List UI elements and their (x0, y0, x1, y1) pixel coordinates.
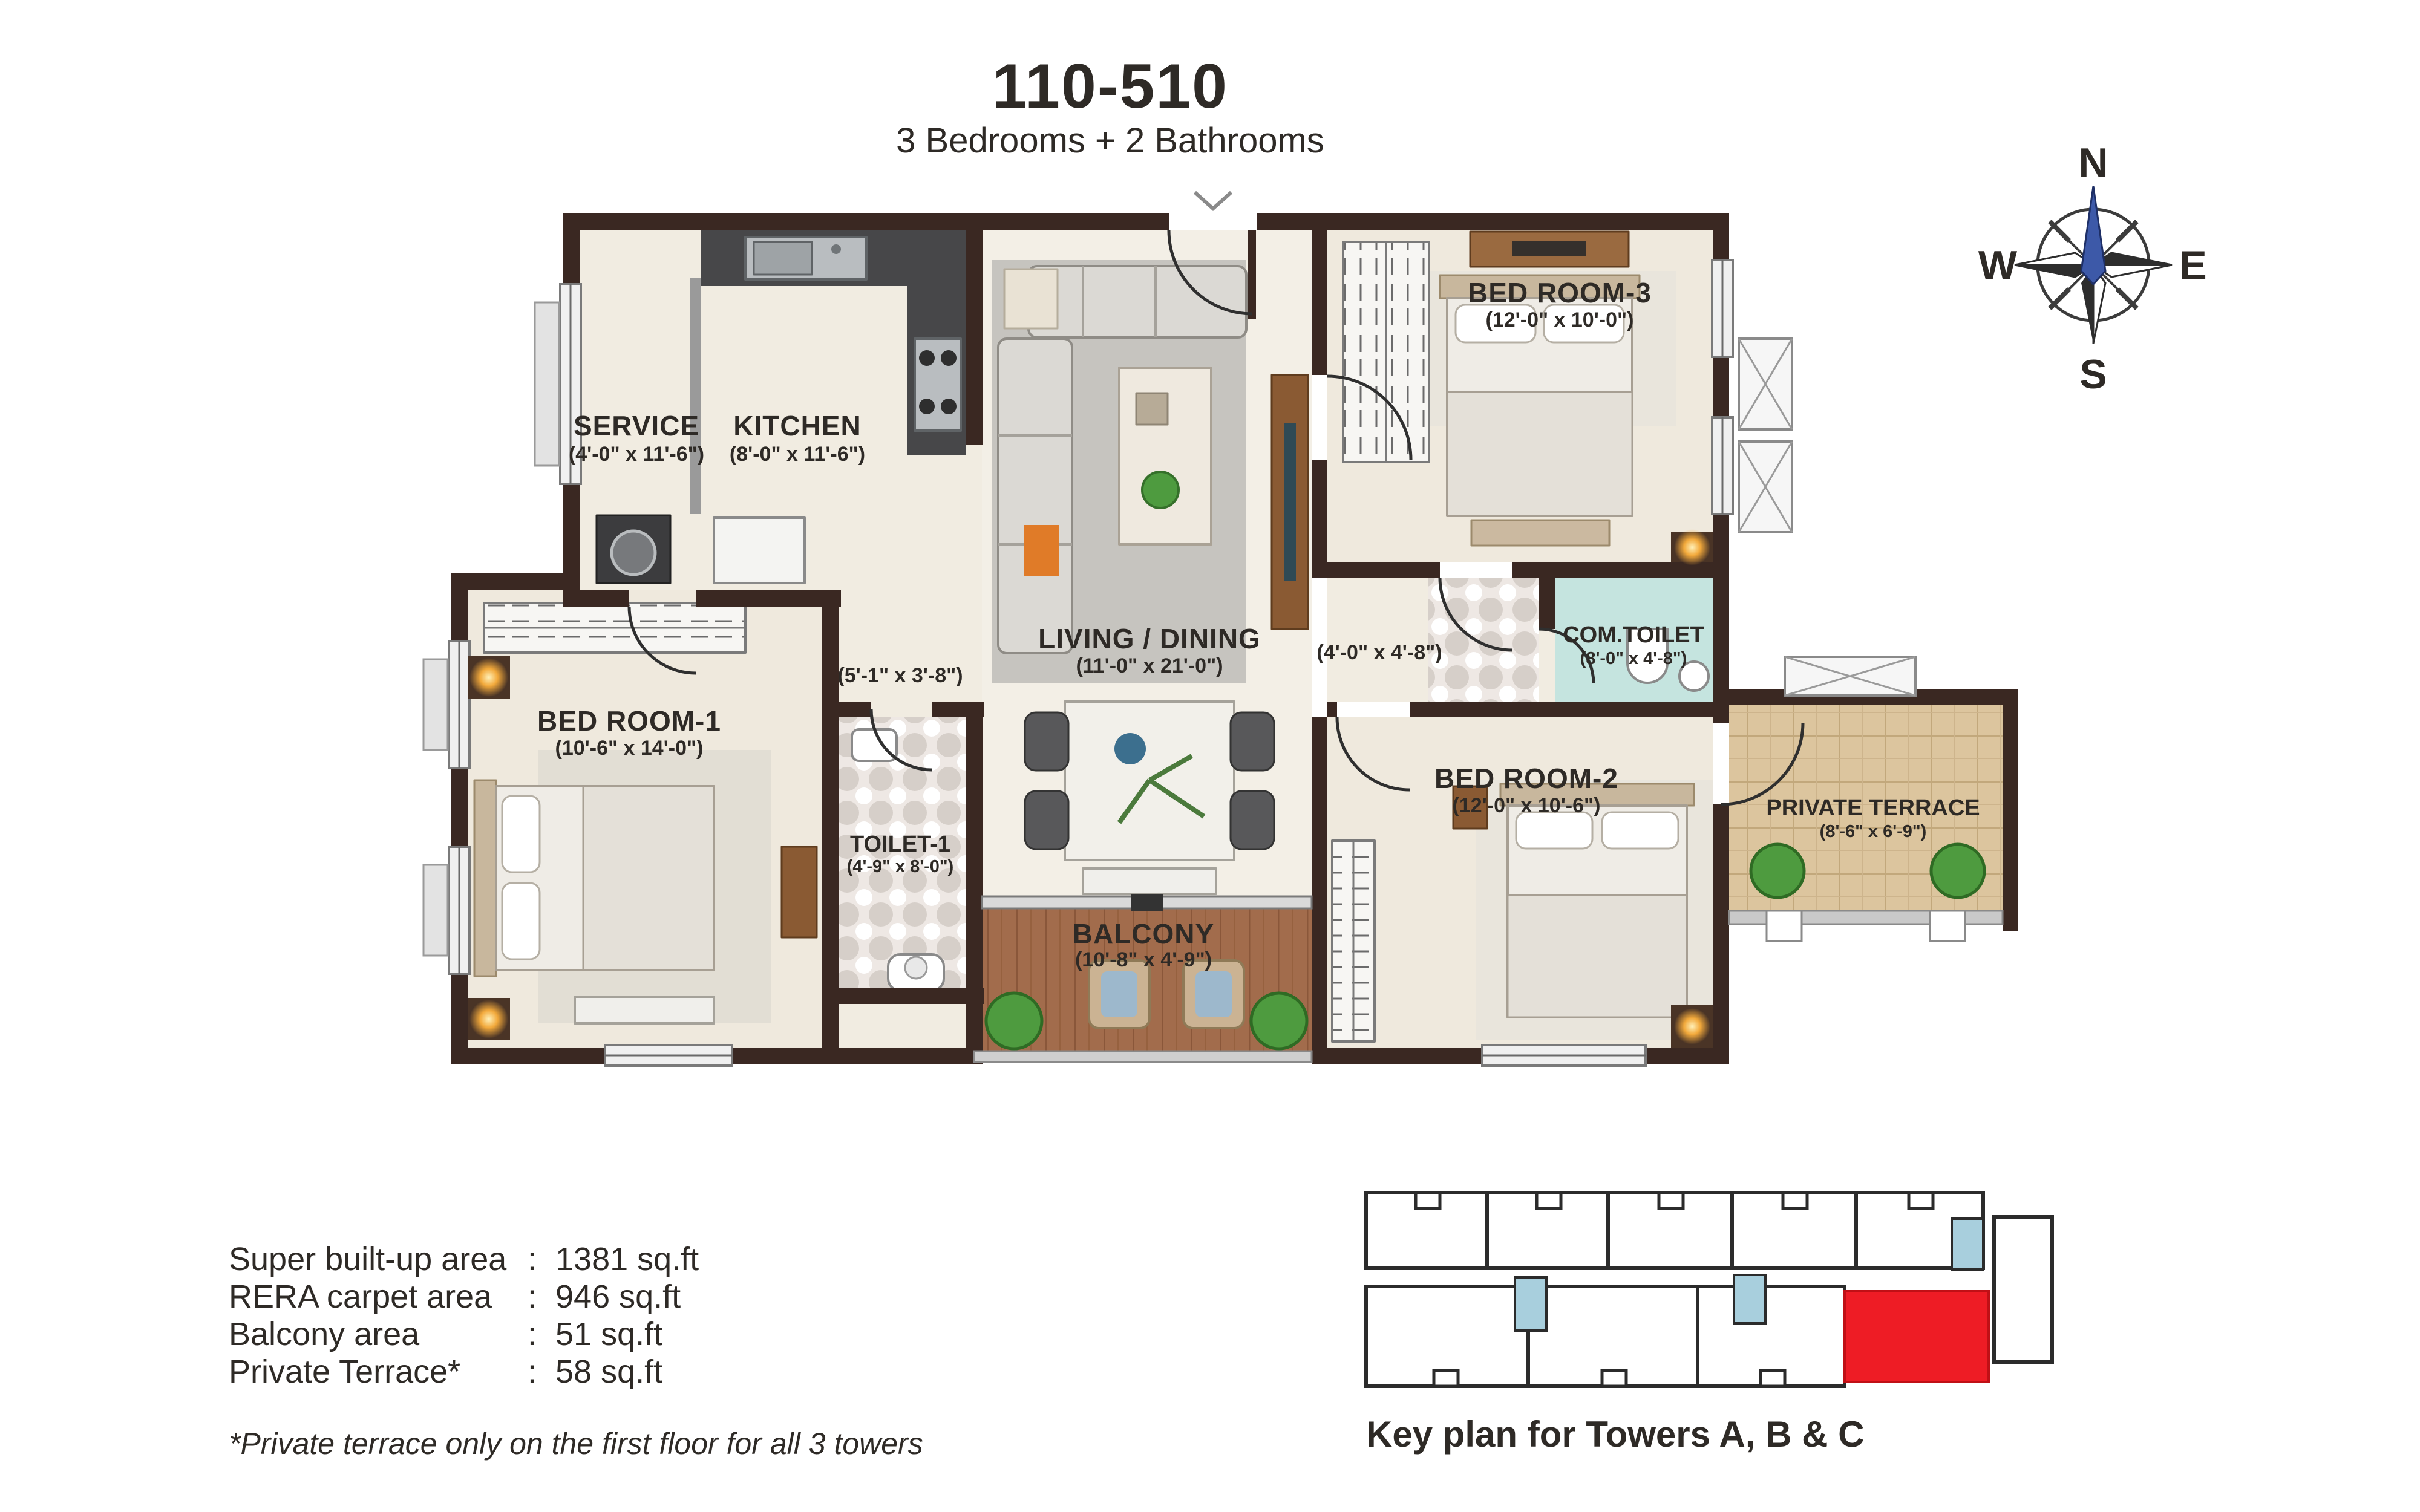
pillow (502, 796, 540, 872)
floor-plan-page: 110-510 3 Bedrooms + 2 Bathrooms N E S W (0, 0, 2420, 1512)
sofa-left (998, 339, 1072, 653)
plant-icon (1251, 993, 1307, 1049)
floor-plan-canvas: 110-510 3 Bedrooms + 2 Bathrooms N E S W (0, 0, 2420, 1512)
area-row-colon: : (528, 1354, 537, 1390)
label-toilet1: TOILET-1 (850, 832, 950, 857)
area-row-colon: : (528, 1279, 537, 1315)
plant-icon (1751, 844, 1804, 898)
dims-passage-1: (5'-1" x 3'-8") (837, 664, 963, 687)
bed-bench (1471, 520, 1609, 546)
area-row-label: Private Terrace* (229, 1354, 460, 1390)
compass-west-label: W (1978, 243, 2018, 288)
area-row-colon: : (528, 1316, 537, 1352)
dims-kitchen: (8'-0" x 11'-6") (730, 443, 865, 466)
keyplan-core (1515, 1277, 1546, 1331)
blanket (583, 786, 714, 970)
orange-throw (1024, 525, 1059, 576)
area-row-value: 946 sq.ft (555, 1279, 681, 1315)
area-row-value: 58 sq.ft (555, 1354, 662, 1390)
dining-chair (1025, 791, 1068, 849)
area-row-label: Balcony area (229, 1316, 420, 1352)
label-balcony: BALCONY (1073, 918, 1214, 950)
light-icon (469, 1000, 508, 1038)
refrigerator (714, 518, 805, 583)
wash-basin (852, 729, 897, 761)
window-sill (423, 659, 448, 750)
bed-headboard (474, 780, 496, 976)
label-kitchen: KITCHEN (733, 410, 861, 442)
compass-north-label: N (2078, 140, 2108, 186)
compass-east-label: E (2179, 243, 2206, 288)
blanket (1508, 895, 1687, 1017)
dims-living: (11'-0" x 21'-0") (1076, 654, 1223, 677)
plant-icon (1142, 472, 1179, 508)
keyplan-core (1952, 1219, 1983, 1269)
keyplan-highlighted-unit (1845, 1291, 1989, 1382)
light-icon (1674, 529, 1710, 565)
label-living: LIVING / DINING (1038, 623, 1261, 654)
keyplan-unit (1994, 1217, 2052, 1362)
pillow (1602, 812, 1678, 849)
dims-balcony: (10'-8" x 4'-9") (1075, 948, 1212, 971)
plant-icon (1931, 844, 1984, 898)
window-sill (535, 302, 559, 466)
area-footnote: *Private terrace only on the first floor… (229, 1427, 923, 1461)
blanket (1447, 392, 1632, 516)
balcony-railing (974, 1051, 1312, 1062)
dims-comtoilet: (8'-0" x 4'-8") (1580, 649, 1687, 668)
dims-passage-2: (4'-0" x 4'-8") (1316, 641, 1442, 664)
dims-toilet1: (4'-9" x 8'-0") (847, 857, 954, 876)
label-bedroom1: BED ROOM-1 (537, 705, 721, 737)
dining-chair (1025, 712, 1068, 771)
dims-bedroom3: (12'-0" x 10'-0") (1486, 308, 1634, 331)
light-icon (1674, 1008, 1710, 1044)
plant-icon (986, 993, 1042, 1049)
keyplan-caption: Key plan for Towers A, B & C (1366, 1414, 1864, 1455)
sofa-top (1028, 266, 1246, 337)
label-comtoilet: COM.TOILET (1563, 622, 1704, 648)
area-row-colon: : (528, 1241, 537, 1277)
keyplan-core (1734, 1275, 1765, 1323)
plan-subtitle: 3 Bedrooms + 2 Bathrooms (896, 121, 1324, 160)
dining-chair (1231, 791, 1274, 849)
dims-terrace: (8'-6" x 6'-9") (1820, 822, 1927, 841)
label-terrace: PRIVATE TERRACE (1766, 795, 1980, 821)
pillow (502, 883, 540, 959)
dims-bedroom1: (10'-6" x 14'-0") (555, 737, 704, 760)
label-bedroom2: BED ROOM-2 (1434, 763, 1618, 794)
dining-chair (1231, 712, 1274, 771)
window-sill (423, 865, 448, 956)
plan-title: 110-510 (992, 51, 1228, 122)
dims-service: (4'-0" x 11'-6") (569, 443, 704, 466)
label-service: SERVICE (574, 410, 699, 442)
console-table (1083, 868, 1216, 894)
area-row-label: RERA carpet area (229, 1279, 492, 1315)
dresser (782, 847, 817, 937)
pillow (1516, 812, 1592, 849)
entrance-door-leaf (1248, 230, 1256, 319)
side-table (1004, 269, 1058, 328)
area-row-value: 1381 sq.ft (555, 1241, 699, 1277)
label-bedroom3: BED ROOM-3 (1468, 277, 1652, 308)
dims-bedroom2: (12'-0" x 10'-6") (1453, 794, 1601, 817)
bed-bench (575, 997, 714, 1023)
light-icon (469, 658, 508, 697)
compass-south-label: S (2079, 351, 2107, 397)
area-row-label: Super built-up area (229, 1241, 507, 1277)
area-row-value: 51 sq.ft (555, 1316, 662, 1352)
